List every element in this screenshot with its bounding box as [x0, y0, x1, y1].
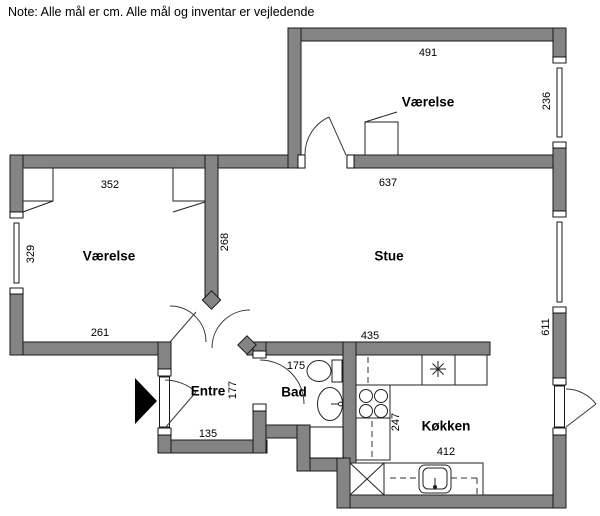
room-label-stue: Stue: [374, 249, 404, 264]
entrance-arrow-icon: [135, 378, 157, 424]
balcony-door-arc: [566, 389, 596, 404]
room-label-bedroom2: Værelse: [402, 95, 455, 110]
wardrobe-right-door: [173, 202, 205, 212]
window-bedroom1: [14, 223, 19, 283]
dim-stue-bottom: 435: [361, 330, 379, 342]
balcony-door-panel: [555, 386, 565, 427]
toilet-tank: [332, 360, 342, 382]
shower-tray: [310, 427, 343, 458]
bath-sink-tap-dot: [339, 402, 343, 406]
wardrobe-left: [23, 168, 53, 201]
bedroom1-door-leaf: [170, 312, 196, 342]
dresser-lid: [365, 112, 397, 122]
dim-entre-depth: 177: [227, 381, 239, 399]
room-label-entre: Entre: [191, 384, 226, 399]
floor-plan-page: Note: Alle mål er cm. Alle mål og invent…: [0, 0, 600, 516]
dim-stue-right: 611: [540, 318, 552, 336]
kitchen-counter-bottom: [350, 463, 483, 495]
wardrobe-left-door: [23, 201, 53, 212]
dim-entre-width: 135: [199, 428, 217, 440]
window-stue: [557, 222, 562, 302]
dim-bedroom1-left: 329: [25, 245, 37, 263]
room-label-bad: Bad: [281, 385, 307, 400]
window-bedroom2: [557, 68, 562, 137]
dim-stue-left: 268: [219, 233, 231, 251]
balcony-door-leaf: [566, 404, 596, 427]
dim-bad-width: 175: [287, 360, 305, 372]
dim-kokken-width: 412: [437, 446, 455, 458]
bedroom2-door-leaf: [329, 117, 346, 155]
wardrobe-right: [173, 168, 205, 201]
dim-kokken-depth: 247: [390, 413, 402, 431]
walls: [10, 28, 566, 508]
dim-bedroom1-top: 352: [101, 179, 119, 191]
room-label-bedroom1: Værelse: [83, 249, 136, 264]
dim-stue-top: 637: [379, 177, 397, 189]
dim-bedroom1-bottom: 261: [91, 327, 109, 339]
dim-bedroom2-top: 491: [419, 47, 437, 59]
dim-bedroom2-right: 236: [541, 92, 553, 110]
entrance-door-panel: [160, 377, 170, 427]
room-label-kokken: Køkken: [422, 419, 471, 434]
bedroom1-door-arc: [170, 306, 206, 342]
dresser: [365, 122, 398, 155]
bedroom2-door-arc: [305, 117, 329, 155]
kitchen-counter-left: [356, 385, 390, 460]
kitchen-sink-tap-dot: [433, 485, 437, 489]
toilet-bowl: [307, 361, 331, 382]
floor-plan-drawing: 491 Værelse 236 352 Værelse 329 261 637 …: [0, 0, 600, 516]
